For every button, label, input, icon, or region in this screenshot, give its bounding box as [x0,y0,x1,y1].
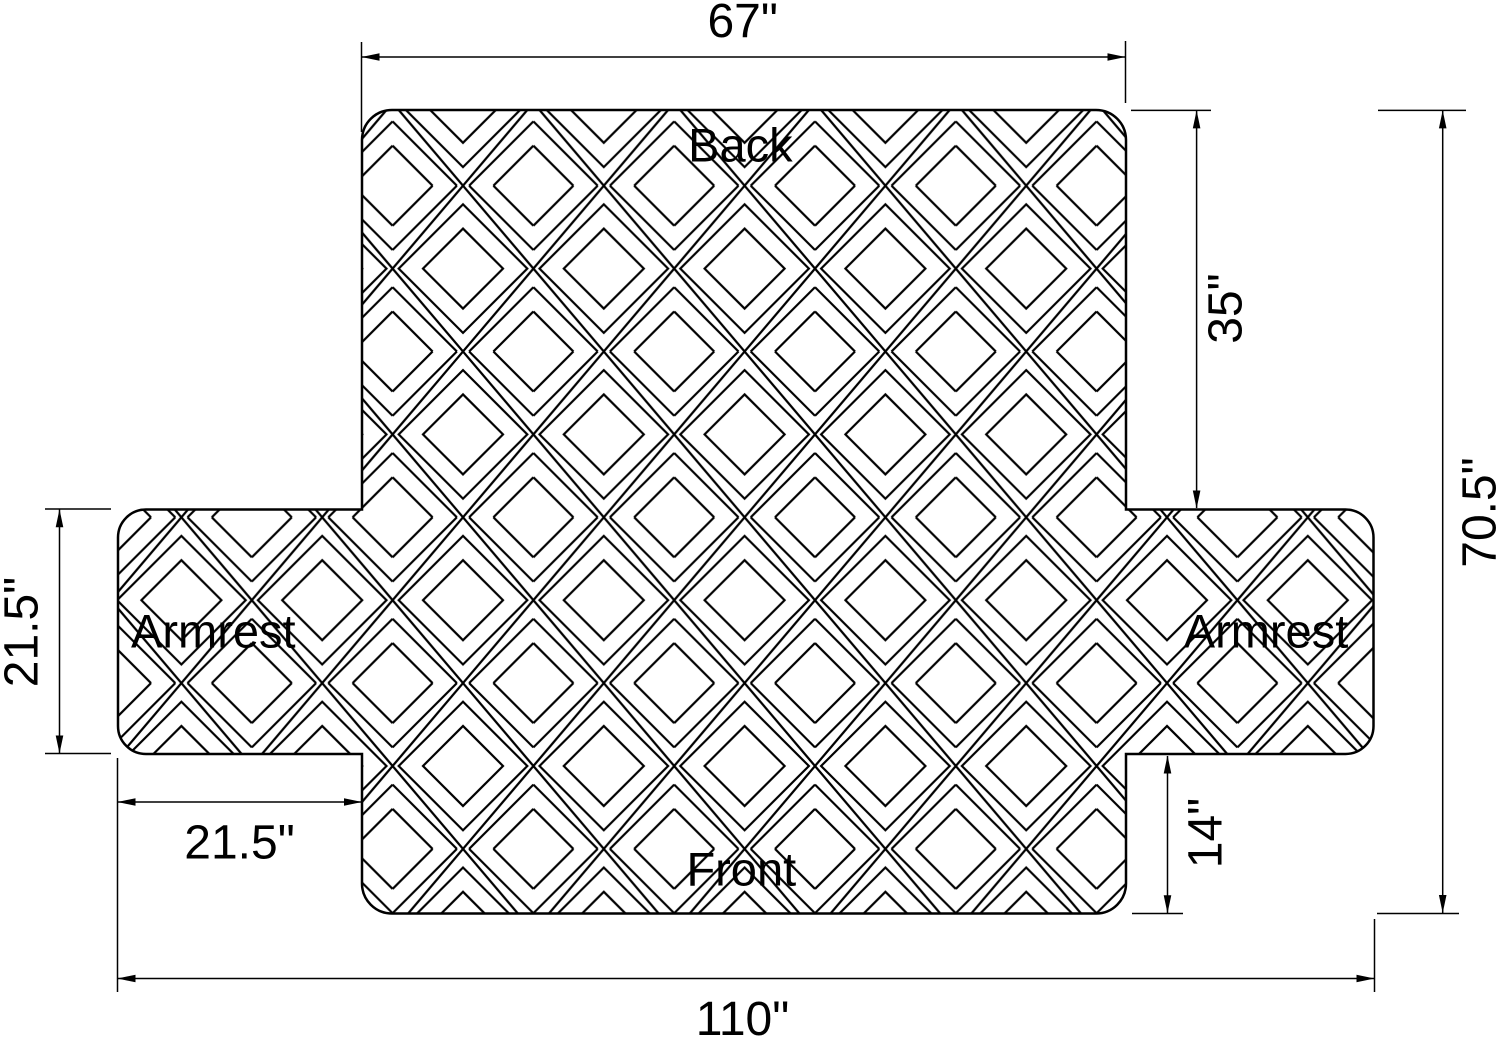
svg-text:21.5": 21.5" [0,577,49,687]
svg-text:Armrest: Armrest [1184,605,1349,658]
svg-text:Front: Front [686,843,796,896]
svg-text:21.5": 21.5" [184,817,294,870]
svg-text:Armrest: Armrest [131,605,296,658]
svg-text:67": 67" [707,0,777,48]
svg-text:Back: Back [688,119,793,172]
svg-text:110": 110" [696,993,790,1039]
svg-text:70.5": 70.5" [1454,457,1500,567]
svg-text:14": 14" [1180,798,1233,868]
svg-text:35": 35" [1200,273,1253,343]
